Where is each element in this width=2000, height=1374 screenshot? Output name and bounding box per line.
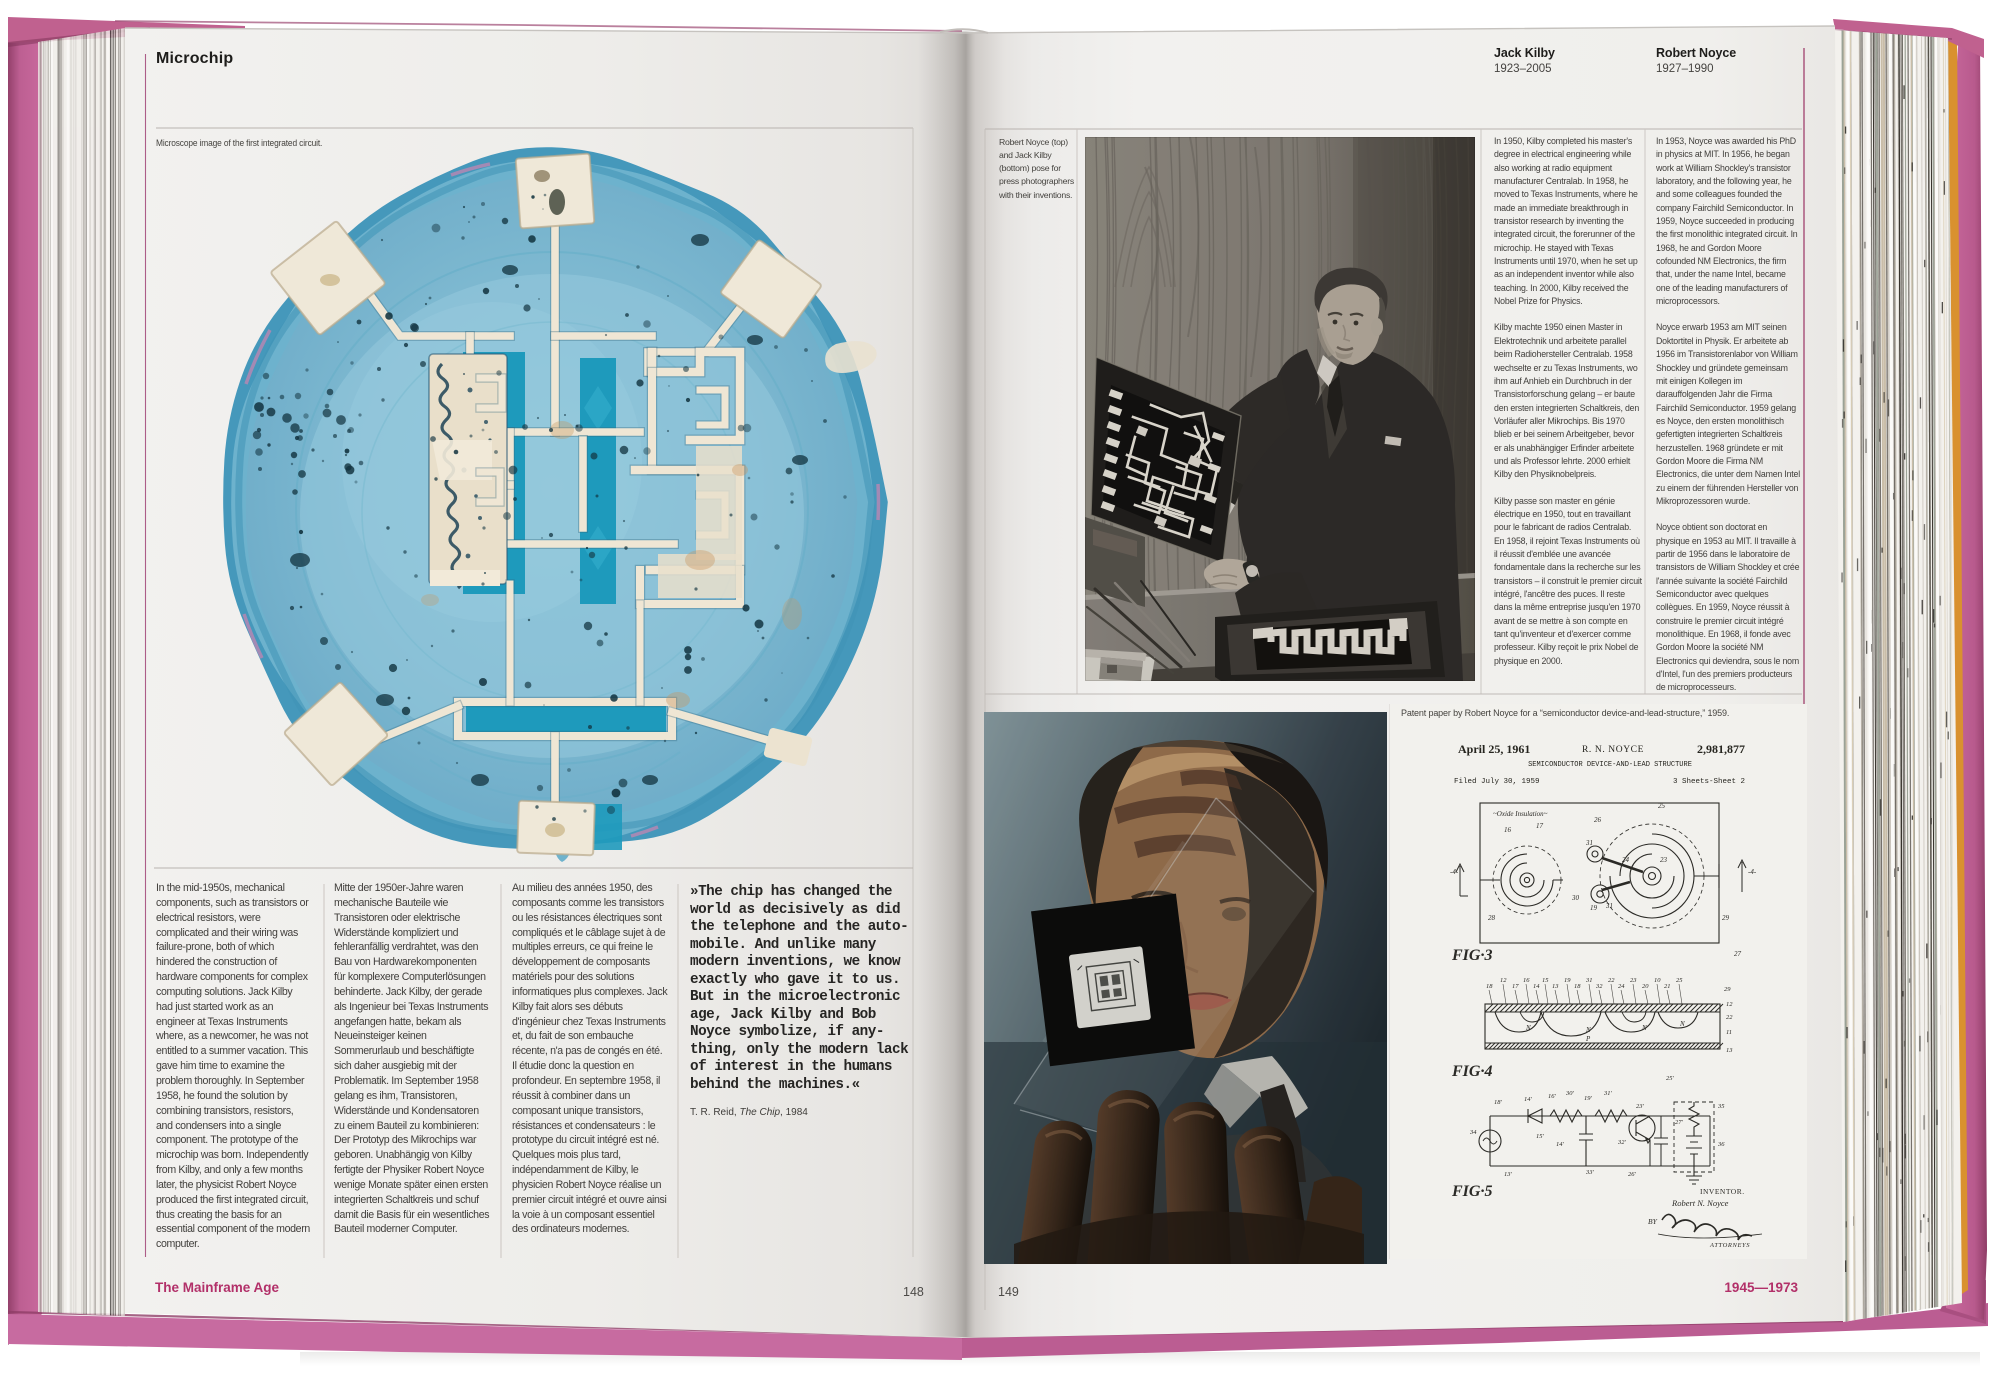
svg-text:P: P xyxy=(1585,1035,1591,1043)
svg-text:31: 31 xyxy=(1585,977,1593,984)
svg-text:17: 17 xyxy=(1512,983,1519,990)
svg-text:FIG·5: FIG·5 xyxy=(1451,1183,1492,1200)
svg-text:N: N xyxy=(1641,1024,1647,1032)
svg-text:16': 16' xyxy=(1548,1093,1557,1100)
svg-text:31: 31 xyxy=(1605,902,1613,910)
svg-text:30: 30 xyxy=(1571,894,1580,902)
svg-text:13: 13 xyxy=(1726,1047,1733,1054)
svg-text:18: 18 xyxy=(1486,983,1493,990)
svg-text:-4-: -4- xyxy=(1450,868,1459,876)
svg-text:2,981,877: 2,981,877 xyxy=(1697,742,1745,756)
svg-text:22: 22 xyxy=(1608,977,1615,984)
svg-text:ATTORNEYS: ATTORNEYS xyxy=(1709,1242,1750,1249)
svg-text:33': 33' xyxy=(1585,1169,1595,1176)
svg-text:25': 25' xyxy=(1666,1075,1675,1082)
svg-text:24: 24 xyxy=(1618,983,1625,990)
svg-text:24: 24 xyxy=(1622,856,1630,864)
svg-text:12: 12 xyxy=(1726,1001,1733,1008)
svg-text:Robert N. Noyce: Robert N. Noyce xyxy=(1671,1198,1729,1208)
svg-text:15': 15' xyxy=(1536,1133,1545,1140)
svg-text:26: 26 xyxy=(1594,816,1602,824)
svg-text:13': 13' xyxy=(1504,1171,1513,1178)
svg-text:19: 19 xyxy=(1590,904,1598,912)
svg-text:31': 31' xyxy=(1603,1090,1613,1097)
svg-text:15: 15 xyxy=(1542,977,1549,984)
svg-text:19: 19 xyxy=(1564,977,1571,984)
svg-text:14': 14' xyxy=(1524,1096,1533,1103)
svg-text:22: 22 xyxy=(1726,1014,1733,1021)
svg-text:SEMICONDUCTOR DEVICE-AND-LEAD: SEMICONDUCTOR DEVICE-AND-LEAD STRUCTURE xyxy=(1528,761,1692,769)
svg-text:34: 34 xyxy=(1469,1129,1477,1136)
svg-text:BY: BY xyxy=(1648,1217,1658,1226)
svg-text:21: 21 xyxy=(1664,983,1671,990)
svg-text:14': 14' xyxy=(1556,1141,1565,1148)
svg-text:27: 27 xyxy=(1734,950,1742,958)
svg-text:20: 20 xyxy=(1642,983,1649,990)
svg-text:29: 29 xyxy=(1724,986,1731,993)
svg-text:26': 26' xyxy=(1628,1171,1637,1178)
svg-text:10: 10 xyxy=(1654,977,1661,984)
svg-text:~Oxide Insulation~: ~Oxide Insulation~ xyxy=(1493,810,1548,818)
svg-text:36: 36 xyxy=(1717,1141,1725,1148)
svg-text:25: 25 xyxy=(1658,802,1666,810)
svg-text:R. N. NOYCE: R. N. NOYCE xyxy=(1582,745,1644,755)
svg-text:18': 18' xyxy=(1494,1099,1503,1106)
svg-text:32: 32 xyxy=(1595,983,1603,990)
svg-text:April 25, 1961: April 25, 1961 xyxy=(1458,742,1530,756)
svg-text:N: N xyxy=(1585,1026,1591,1034)
svg-text:23: 23 xyxy=(1630,977,1637,984)
svg-text:Filed July 30, 1959: Filed July 30, 1959 xyxy=(1454,778,1540,786)
svg-text:30': 30' xyxy=(1565,1090,1575,1097)
svg-text:N: N xyxy=(1525,1024,1531,1032)
svg-text:29: 29 xyxy=(1722,914,1730,922)
svg-text:16: 16 xyxy=(1523,977,1530,984)
svg-text:14: 14 xyxy=(1533,983,1540,990)
svg-text:16: 16 xyxy=(1504,826,1512,834)
svg-text:35: 35 xyxy=(1717,1103,1725,1110)
svg-text:N: N xyxy=(1679,1020,1685,1028)
svg-text:23: 23 xyxy=(1660,856,1668,864)
svg-text:31: 31 xyxy=(1585,839,1593,847)
svg-text:-4-: -4- xyxy=(1748,868,1757,876)
svg-text:19': 19' xyxy=(1584,1095,1593,1102)
svg-text:27': 27' xyxy=(1675,1119,1684,1126)
svg-text:18: 18 xyxy=(1574,983,1581,990)
svg-text:12: 12 xyxy=(1500,977,1507,984)
svg-text:FIG·4: FIG·4 xyxy=(1451,1063,1492,1080)
svg-text:13: 13 xyxy=(1552,983,1559,990)
svg-text:3 Sheets-Sheet 2: 3 Sheets-Sheet 2 xyxy=(1673,778,1745,786)
svg-text:23': 23' xyxy=(1636,1103,1645,1110)
svg-text:28: 28 xyxy=(1488,914,1496,922)
svg-text:17: 17 xyxy=(1536,822,1544,830)
svg-text:25: 25 xyxy=(1676,977,1683,984)
svg-text:INVENTOR.: INVENTOR. xyxy=(1700,1187,1745,1196)
svg-text:32': 32' xyxy=(1617,1139,1627,1146)
svg-text:11: 11 xyxy=(1726,1029,1732,1036)
svg-text:FIG·3: FIG·3 xyxy=(1451,947,1492,964)
